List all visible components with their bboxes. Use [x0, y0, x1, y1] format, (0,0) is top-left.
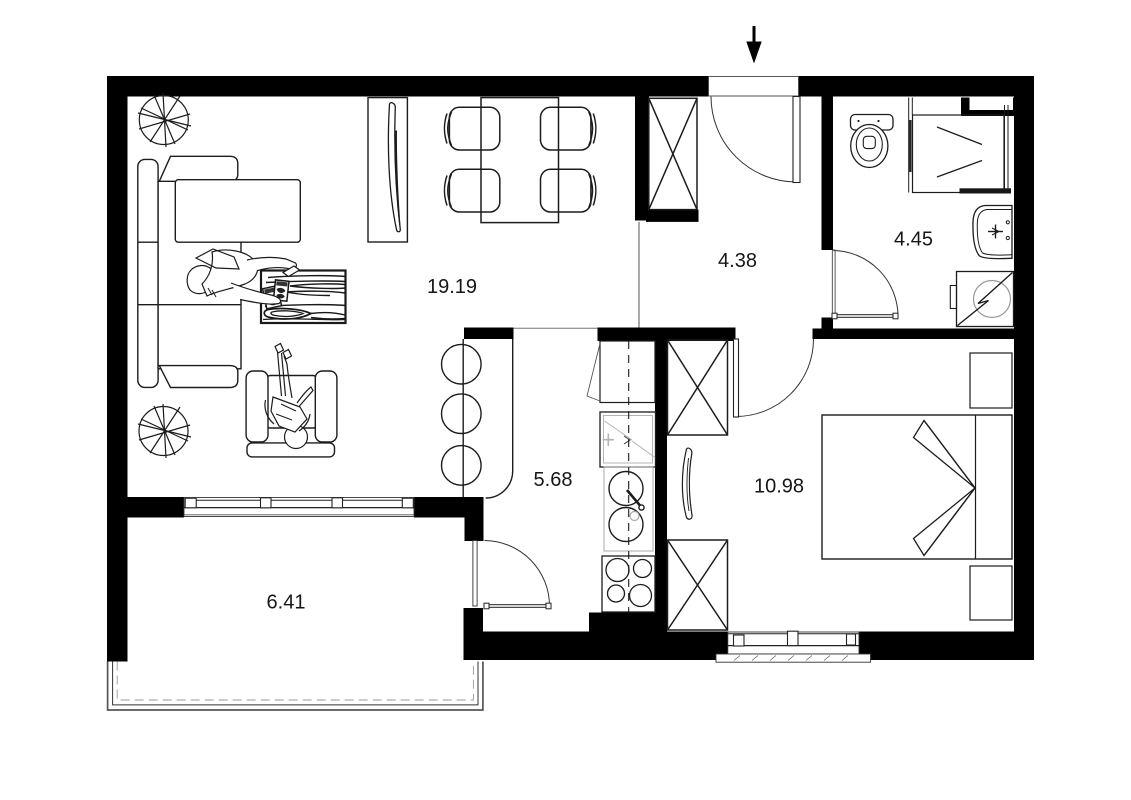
svg-text:19.19: 19.19: [427, 276, 477, 298]
svg-text:4.38: 4.38: [718, 250, 757, 272]
svg-text:10.98: 10.98: [754, 476, 804, 498]
svg-text:5.68: 5.68: [534, 469, 573, 491]
svg-text:6.41: 6.41: [267, 592, 306, 614]
svg-text:4.45: 4.45: [894, 228, 933, 250]
